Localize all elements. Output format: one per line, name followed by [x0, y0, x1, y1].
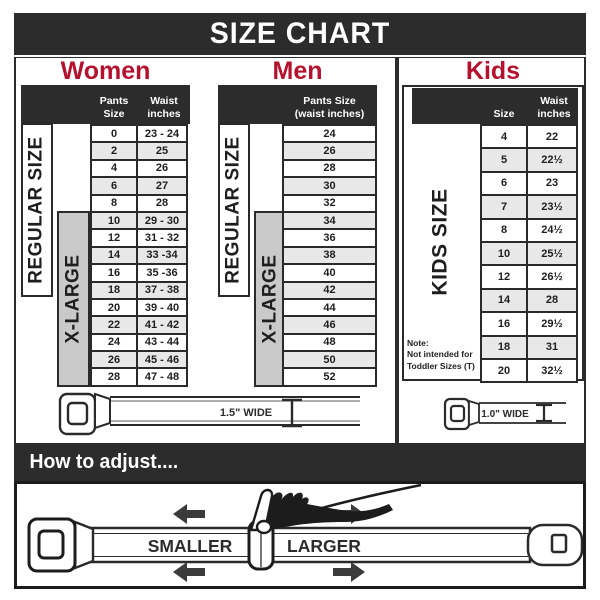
- kids-table-header: Size Waist inches: [412, 88, 578, 124]
- women-regular-size-box: REGULAR SIZE: [21, 123, 53, 297]
- table-cell: 25½: [526, 241, 578, 266]
- table-cell: 31: [526, 335, 578, 360]
- table-cell: 24½: [526, 218, 578, 243]
- content-right-border: [584, 57, 586, 443]
- table-cell: 52: [282, 367, 377, 386]
- table-cell: 5: [480, 147, 528, 172]
- table-row: 824½: [480, 218, 578, 243]
- table-cell: 22: [526, 124, 578, 149]
- kids-size-label: KIDS SIZE: [429, 188, 453, 295]
- table-cell: 23½: [526, 194, 578, 219]
- arrow-left-icon: [173, 562, 205, 582]
- width-measure-icon: [536, 405, 552, 421]
- kids-size-label-area: KIDS SIZE: [411, 152, 471, 332]
- kids-section-divider: [395, 57, 399, 443]
- kids-belt-illustration: 1.0" WIDE: [402, 388, 586, 440]
- table-cell: 23: [526, 171, 578, 196]
- kids-note: Note: Not intended for Toddler Sizes (T): [407, 338, 481, 372]
- table-cell: 8: [480, 218, 528, 243]
- table-cell: 6: [480, 171, 528, 196]
- adjust-belt-illustration: SMALLER LARGER: [17, 484, 583, 586]
- table-cell: 22½: [526, 147, 578, 172]
- kids-col1-header: Size: [480, 108, 528, 121]
- women-regular-size-label: REGULAR SIZE: [26, 136, 48, 283]
- women-table: Pants Size Waist inches REGULAR SIZE X-L…: [21, 85, 190, 387]
- table-row: 522½: [480, 147, 578, 172]
- size-chart-page: SIZE CHART Women Men Kids Pants Size Wai…: [0, 0, 600, 600]
- table-cell: 10: [480, 241, 528, 266]
- smaller-label: SMALLER: [148, 536, 233, 556]
- adjust-section-header: How to adjust....: [14, 443, 586, 481]
- men-table-header: Pants Size (waist inches): [218, 85, 377, 124]
- table-cell: 28: [526, 288, 578, 313]
- belt-buckle-icon: [29, 519, 93, 571]
- arrow-left-icon: [173, 504, 205, 524]
- table-cell: 12: [480, 264, 528, 289]
- kids-col2-header: Waist inches: [528, 95, 580, 121]
- table-cell: 4: [480, 124, 528, 149]
- table-cell: 14: [480, 288, 528, 313]
- table-row: 1428: [480, 288, 578, 313]
- table-row: 52: [282, 367, 377, 386]
- table-cell: 32½: [526, 358, 578, 383]
- table-cell: 7: [480, 194, 528, 219]
- page-title: SIZE CHART: [210, 17, 391, 51]
- women-col2-header: Waist inches: [138, 95, 190, 121]
- women-xlarge-box: X-LARGE: [57, 211, 90, 387]
- larger-label: LARGER: [287, 536, 361, 556]
- belt-buckle-icon: [60, 394, 110, 434]
- kids-width-label: 1.0" WIDE: [481, 409, 529, 420]
- table-row: 422: [480, 124, 578, 149]
- women-xlarge-label: X-LARGE: [63, 255, 85, 344]
- kids-table: Size Waist inches KIDS SIZE Note: Not in…: [402, 85, 584, 381]
- table-row: 1025½: [480, 241, 578, 266]
- content-left-border: [14, 57, 16, 443]
- kids-heading: Kids: [402, 57, 584, 86]
- table-row: 1629½: [480, 311, 578, 336]
- title-bar: SIZE CHART: [14, 13, 586, 55]
- women-col1-header: Pants Size: [90, 95, 138, 121]
- arrow-right-icon: [333, 562, 365, 582]
- table-cell: 20: [480, 358, 528, 383]
- table-row: 2847 - 48: [90, 367, 188, 386]
- women-heading: Women: [21, 57, 190, 86]
- men-regular-size-label: REGULAR SIZE: [223, 136, 245, 283]
- table-row: 2032½: [480, 358, 578, 383]
- adult-width-label: 1.5" WIDE: [220, 407, 272, 419]
- table-row: 623: [480, 171, 578, 196]
- table-row: 1226½: [480, 264, 578, 289]
- men-table-rows: 242628303234363840424446485052: [282, 124, 377, 387]
- table-cell: 29½: [526, 311, 578, 336]
- kids-table-rows: 422522½623723½824½1025½1226½14281629½183…: [480, 124, 578, 383]
- adjust-illustration-box: SMALLER LARGER: [14, 481, 586, 589]
- table-cell: 18: [480, 335, 528, 360]
- table-cell: 28: [90, 367, 138, 386]
- women-table-rows: 023 - 242254266278281029 - 301231 - 3214…: [90, 124, 188, 387]
- table-row: 1831: [480, 335, 578, 360]
- women-table-header: Pants Size Waist inches: [21, 85, 190, 124]
- table-cell: 16: [480, 311, 528, 336]
- men-regular-size-box: REGULAR SIZE: [218, 123, 250, 297]
- table-cell: 26½: [526, 264, 578, 289]
- men-col-header: Pants Size (waist inches): [282, 95, 377, 121]
- table-cell: 47 - 48: [136, 367, 188, 386]
- men-heading: Men: [218, 57, 377, 86]
- adult-belt-illustration: 1.5" WIDE: [14, 388, 396, 440]
- belt-tip-icon: [528, 525, 582, 565]
- men-xlarge-label: X-LARGE: [260, 255, 282, 344]
- adjust-heading: How to adjust....: [14, 451, 178, 474]
- width-measure-icon: [282, 400, 302, 426]
- men-table: Pants Size (waist inches) REGULAR SIZE X…: [218, 85, 377, 387]
- belt-buckle-icon: [445, 399, 479, 429]
- table-row: 723½: [480, 194, 578, 219]
